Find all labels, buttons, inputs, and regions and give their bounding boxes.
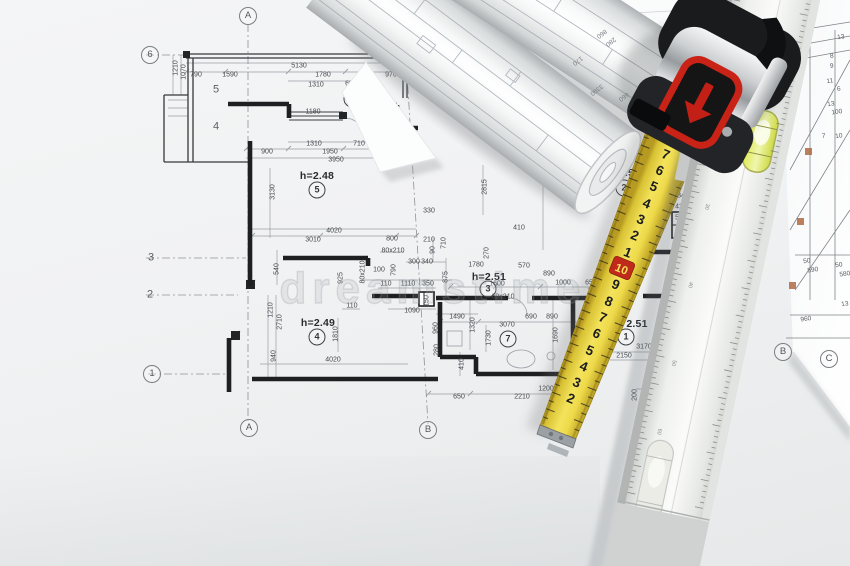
- photo-architectural-plans: 5130790159017809701310690121010701180131…: [0, 0, 850, 566]
- ruler-number: 60: [655, 428, 662, 435]
- ruler-number: 40: [686, 281, 693, 288]
- table-shadow: [0, 456, 600, 566]
- ruler-number: 50: [670, 359, 677, 366]
- ruler-number: 30: [703, 203, 710, 210]
